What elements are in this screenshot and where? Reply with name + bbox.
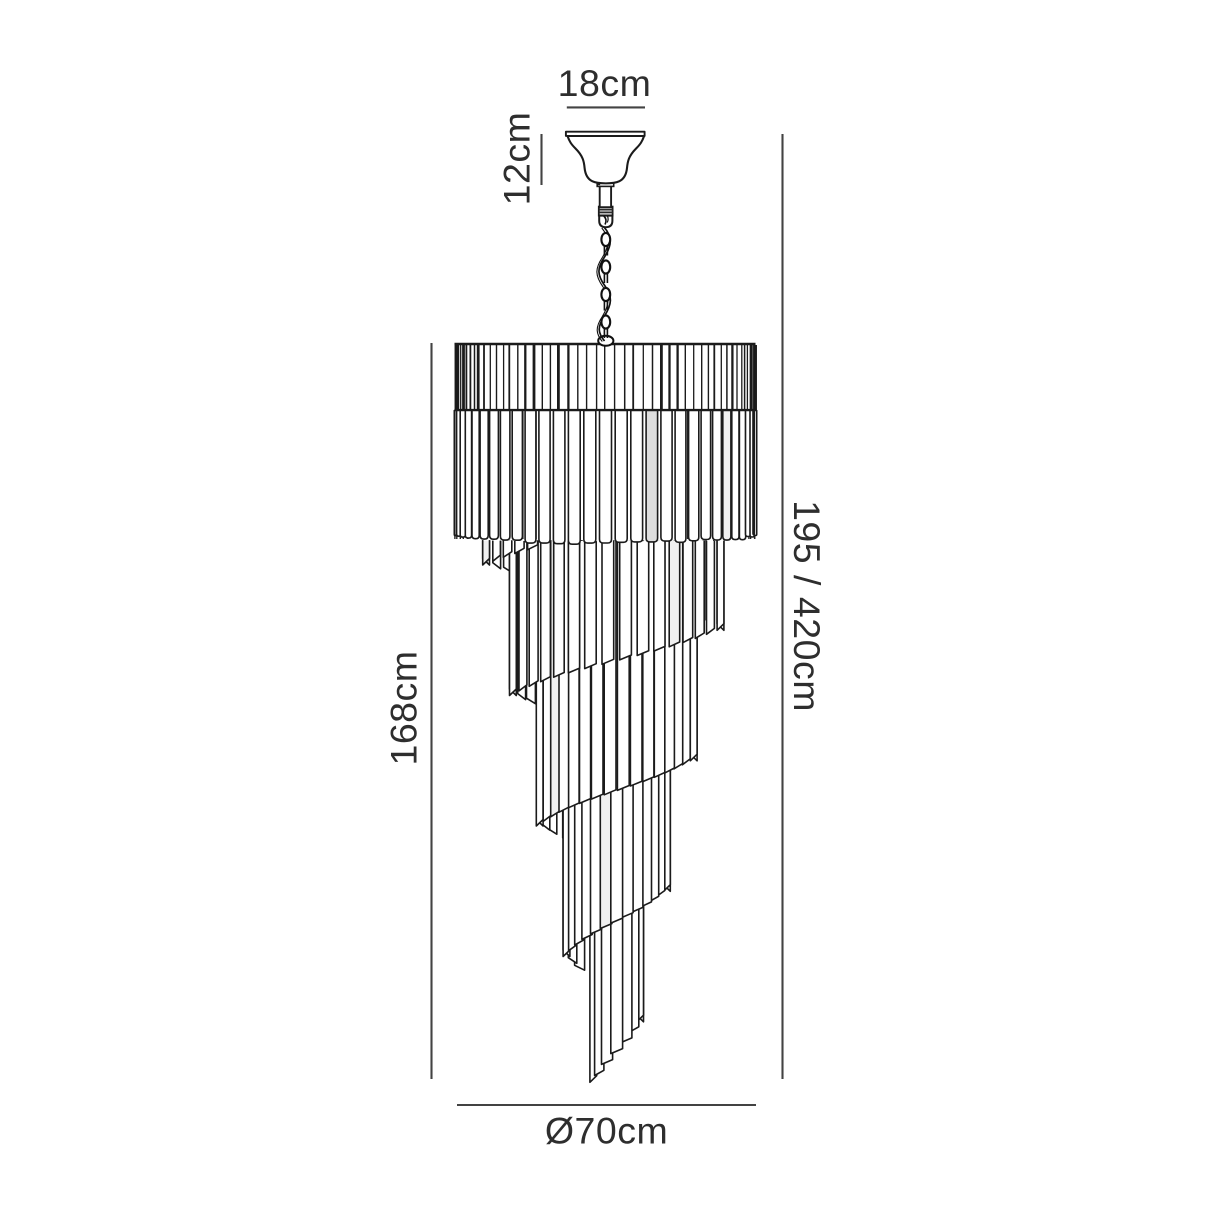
svg-text:Ø70cm: Ø70cm xyxy=(545,1110,668,1152)
svg-text:168cm: 168cm xyxy=(383,650,425,765)
svg-text:12cm: 12cm xyxy=(496,112,538,206)
svg-text:18cm: 18cm xyxy=(558,62,652,104)
svg-text:195 / 420cm: 195 / 420cm xyxy=(786,500,828,712)
